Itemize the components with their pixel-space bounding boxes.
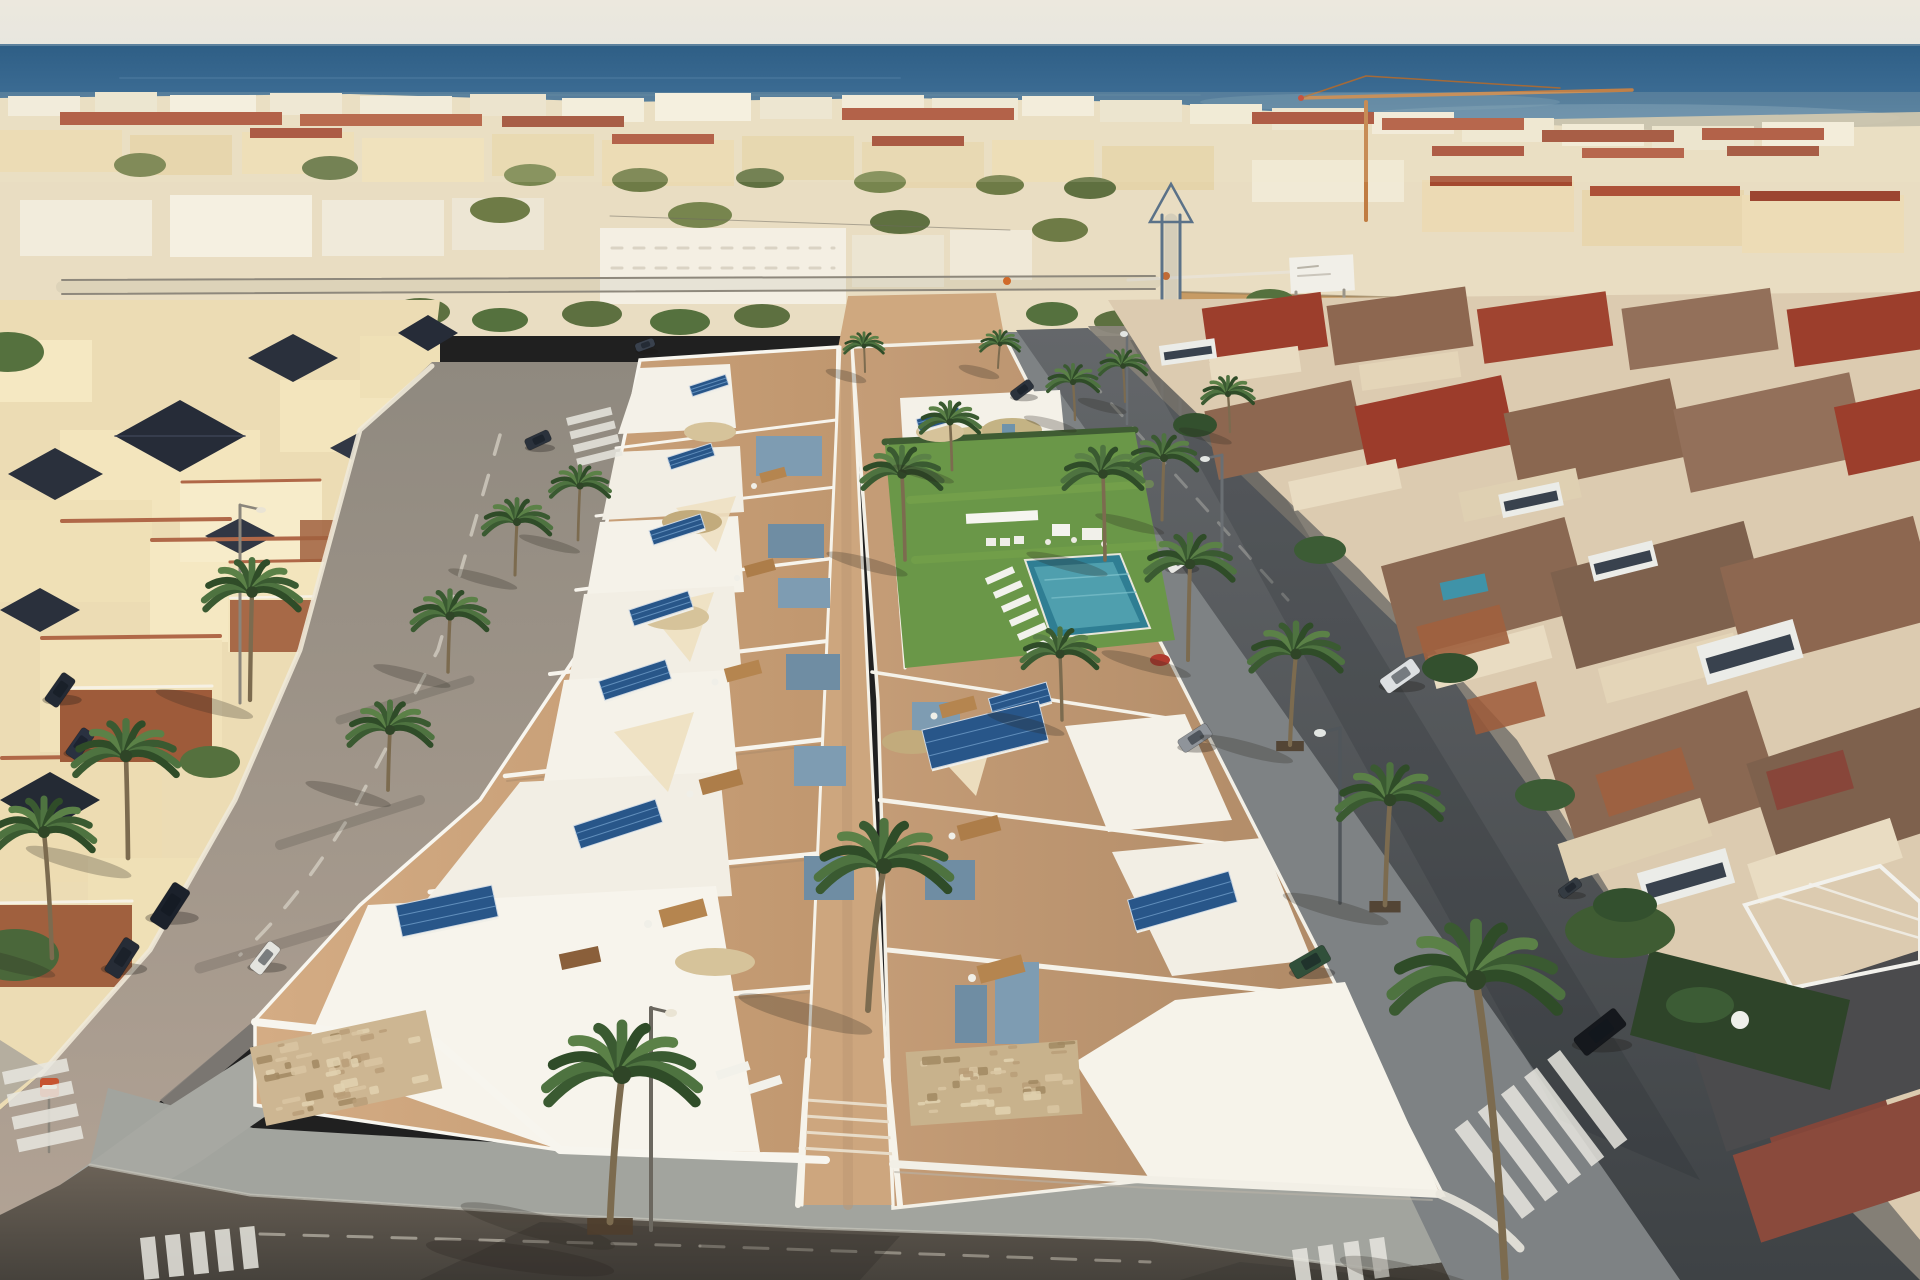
scene-part [1200, 456, 1210, 462]
white-warehouse [170, 195, 312, 257]
palm-crown-center [1055, 649, 1064, 658]
palm-trunk [1188, 564, 1190, 660]
palm-trunk [1162, 458, 1164, 520]
scene-part [950, 230, 1032, 280]
palm-crown-center [1290, 648, 1301, 659]
scene-part [968, 974, 976, 982]
palm-crown-center [1384, 794, 1396, 806]
lamp-head [665, 1009, 677, 1017]
scene-part [768, 524, 824, 558]
scene-part [955, 985, 987, 1043]
scene-part [687, 791, 694, 798]
scene-part [1071, 537, 1077, 543]
scene-part [1593, 888, 1657, 922]
scene-part [846, 350, 848, 1205]
scene-part [675, 948, 755, 976]
worker [1003, 277, 1011, 285]
stone [986, 1099, 994, 1107]
palm-crown-center [862, 344, 867, 349]
scene-part [1750, 191, 1900, 201]
scene-part [470, 197, 530, 223]
scene-part [1422, 653, 1478, 683]
scene-part [20, 200, 152, 256]
palm-crown-center [120, 750, 132, 762]
scene-part [180, 746, 240, 778]
glass-shade-box [756, 436, 822, 476]
scene-part [42, 636, 220, 638]
scene-part [1014, 536, 1024, 544]
screenshot-root [0, 0, 1920, 1280]
stone [1023, 1091, 1041, 1101]
scene-part [949, 833, 956, 840]
palm-trunk [1060, 654, 1062, 720]
scene-part [1666, 987, 1734, 1023]
pampas-planting [684, 422, 736, 442]
stone [989, 1050, 997, 1056]
scene-part [182, 480, 320, 482]
scene-part [322, 200, 444, 256]
stone [1028, 1080, 1039, 1085]
palm-trunk [1103, 474, 1105, 560]
scene-part [712, 679, 719, 686]
scene-part [1120, 331, 1128, 337]
scene-part [472, 308, 528, 332]
scene-part [986, 538, 996, 546]
scene-part [60, 686, 212, 688]
scene-part [62, 282, 1155, 287]
scene-part [1294, 536, 1346, 564]
scene-part [870, 210, 930, 234]
stone [1008, 1045, 1018, 1049]
scene-part [0, 500, 152, 602]
palm-crown-center [998, 342, 1003, 347]
palm-crown-center [385, 725, 395, 735]
palm-trunk [126, 756, 128, 858]
trampoline [1731, 1011, 1749, 1029]
white-apartment-slab [600, 228, 846, 304]
stone-wall [906, 1040, 1083, 1126]
palm-trunk [388, 730, 390, 790]
scene-part [1422, 180, 1574, 232]
stone [922, 1056, 941, 1066]
palm-trunk [515, 522, 517, 575]
stone [943, 1056, 960, 1063]
palm-crown-center [613, 1066, 631, 1084]
stone [995, 1106, 1011, 1115]
scene-part [1000, 538, 1010, 546]
garden-table [1052, 524, 1070, 536]
aerial-photograph [0, 0, 1920, 1280]
stone [1047, 1105, 1060, 1114]
palm-crown-center [1070, 379, 1076, 385]
palm-crown-center [1120, 363, 1126, 369]
palm-trunk [250, 592, 252, 700]
scene-part [668, 202, 732, 228]
scene-part [778, 578, 830, 608]
lamp-head [1314, 729, 1326, 737]
scene-part [734, 575, 740, 581]
stone [1010, 1072, 1018, 1078]
tiled-parapet [62, 519, 230, 521]
scene-part [650, 309, 710, 335]
stone [988, 1087, 1002, 1094]
scene-part [1582, 190, 1744, 246]
palm-crown-center [1225, 391, 1231, 397]
stone [970, 1076, 978, 1080]
scene-part [644, 920, 652, 928]
scene-part [1742, 195, 1904, 253]
palm-crown-center [445, 611, 454, 620]
palm-crown-center [1185, 559, 1196, 570]
scene-part [1026, 302, 1078, 326]
stone [976, 1084, 985, 1091]
palm-crown-center [1466, 970, 1486, 990]
scene-part [1082, 528, 1102, 540]
scene-part [0, 901, 132, 903]
palm-crown-center [876, 858, 892, 874]
scene-part [931, 713, 938, 720]
stone [927, 1093, 938, 1102]
lamp-head [256, 507, 266, 513]
scene-part [786, 654, 840, 690]
palm-crown-center [576, 482, 583, 489]
haze [0, 92, 1920, 182]
scene-part [751, 483, 757, 489]
stone [1049, 1042, 1066, 1049]
palm-trunk [448, 616, 450, 672]
scene-part [1590, 186, 1740, 196]
palm-crown-center [1098, 469, 1108, 479]
palm-crown-center [246, 586, 258, 598]
palm-trunk [864, 346, 865, 372]
scene-part [1045, 539, 1051, 545]
scene-part [794, 746, 846, 786]
scene-part [1515, 779, 1575, 811]
scene-part [1032, 218, 1088, 242]
scene-part [562, 301, 622, 327]
palm-crown-center [946, 418, 953, 425]
stone [1062, 1079, 1073, 1085]
palm-crown-center [38, 826, 50, 838]
scene-part [734, 304, 790, 328]
stone [1045, 1073, 1063, 1081]
palm-crown-center [513, 518, 521, 526]
stone [952, 1081, 960, 1089]
palm-crown-center [1160, 454, 1168, 462]
